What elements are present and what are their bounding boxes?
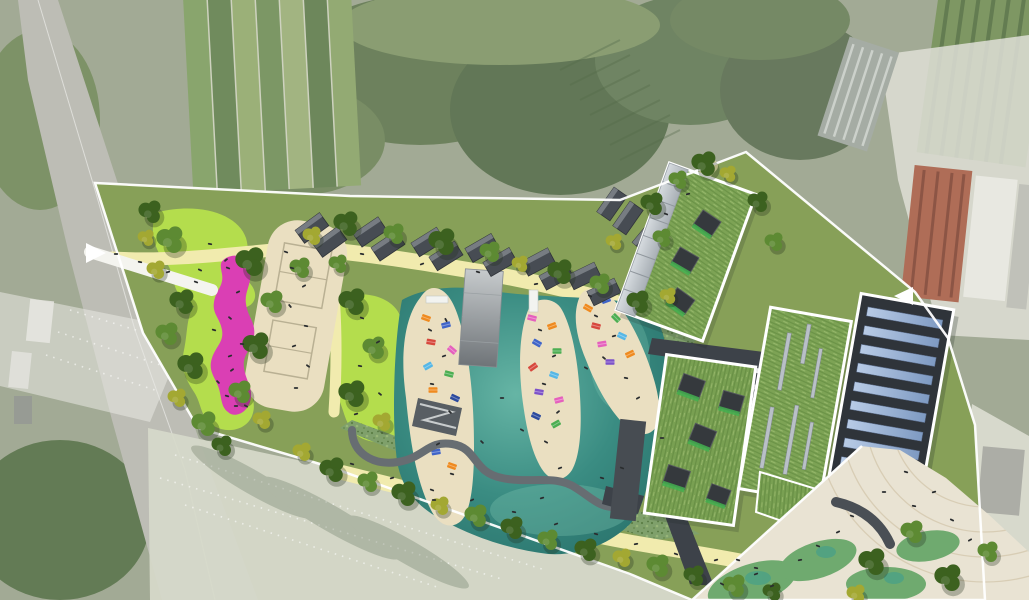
site-plan-rendering (0, 0, 1029, 600)
deck-bridge (459, 269, 504, 367)
masterplan-image (0, 0, 1029, 600)
